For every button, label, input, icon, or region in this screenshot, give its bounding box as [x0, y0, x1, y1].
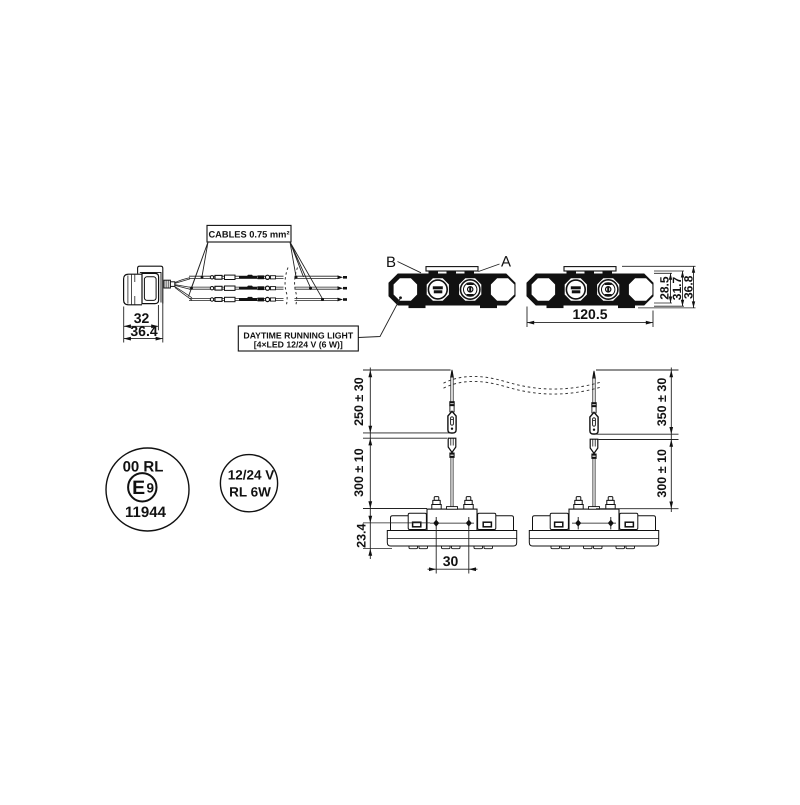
svg-text:30: 30 — [443, 553, 459, 569]
svg-text:A: A — [501, 254, 511, 271]
svg-text:12/24 V: 12/24 V — [228, 467, 275, 482]
svg-text:300 ± 10: 300 ± 10 — [352, 448, 366, 497]
svg-text:120.5: 120.5 — [572, 306, 607, 322]
svg-text:23.4: 23.4 — [355, 523, 369, 547]
svg-text:11944: 11944 — [125, 504, 167, 521]
svg-text:CABLES 0.75 mm²: CABLES 0.75 mm² — [208, 230, 289, 240]
svg-text:[4×LED 12/24 V (6 W)]: [4×LED 12/24 V (6 W)] — [254, 340, 343, 350]
svg-text:9: 9 — [147, 480, 155, 495]
svg-text:RL 6W: RL 6W — [229, 485, 271, 500]
svg-text:B: B — [386, 254, 396, 271]
svg-text:E: E — [132, 477, 145, 499]
svg-text:350 ± 30: 350 ± 30 — [655, 378, 669, 427]
svg-text:36.4: 36.4 — [130, 323, 157, 339]
svg-text:36.8: 36.8 — [682, 275, 696, 299]
svg-text:250 ± 30: 250 ± 30 — [352, 377, 366, 426]
svg-text:300 ± 10: 300 ± 10 — [655, 449, 669, 498]
